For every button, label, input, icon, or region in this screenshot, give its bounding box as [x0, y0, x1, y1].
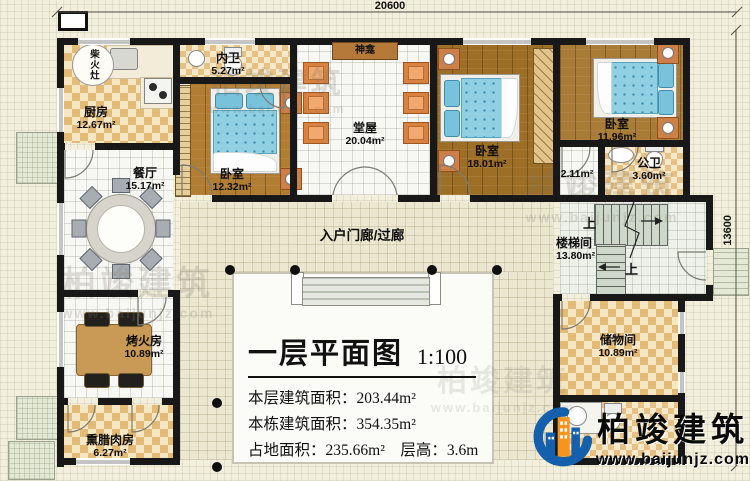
chimney [58, 11, 88, 31]
chair-icon [84, 373, 110, 388]
floor-plan: 柴火灶 神龛 [0, 0, 750, 481]
room-label-storage: 储物间10.89m² [578, 333, 658, 360]
wall [470, 195, 560, 202]
bed-icon [440, 74, 520, 142]
column [492, 265, 502, 275]
wall [173, 38, 180, 175]
pillow-icon [444, 80, 460, 107]
room-label-smoke-room: 熏腊肉房6.27m² [64, 433, 156, 460]
brand-logo-mark [532, 403, 592, 469]
window [463, 38, 531, 45]
wall [430, 38, 437, 202]
column [212, 462, 222, 472]
pillow-icon [444, 110, 460, 137]
armchair-icon [403, 92, 429, 114]
wall [57, 290, 138, 297]
wall [173, 290, 180, 465]
chair-icon [84, 312, 110, 327]
wall [95, 143, 173, 150]
wood-stove-icon: 柴火灶 [72, 44, 114, 86]
exterior-pad-left-top [16, 132, 59, 184]
area-row: 占地面积：235.66m² 层高：3.6m [248, 438, 476, 464]
pillow-icon [658, 63, 674, 88]
blanket-icon [461, 78, 503, 138]
wall [590, 294, 713, 301]
nightstand-icon [657, 117, 679, 139]
window [205, 38, 255, 45]
shrine-shelf: 神龛 [332, 42, 398, 60]
wall [98, 398, 132, 405]
room-label-porch: 入户门廊/过廊 [282, 228, 442, 244]
stove-label: 柴火灶 [86, 49, 100, 81]
area-row: 本层建筑面积：203.44m² [248, 386, 476, 412]
pillow-icon [246, 93, 274, 109]
burner-icon [149, 83, 157, 91]
pillow-icon [215, 93, 243, 109]
stairs-up-label: 上 [625, 259, 638, 278]
room-label-hall: 堂屋20.04m² [325, 121, 405, 148]
room-label-bedroom-mid: 卧室18.01m² [447, 144, 527, 171]
chair-icon [112, 264, 130, 279]
column [427, 265, 437, 275]
window [586, 38, 654, 45]
wall [57, 398, 68, 405]
wall [162, 398, 180, 405]
room-label-fire-room: 烤火房10.89m² [104, 334, 184, 361]
nightstand-icon [657, 42, 679, 64]
bed-icon [210, 88, 280, 174]
stair-run-down [596, 244, 626, 296]
wall [398, 195, 440, 202]
stairs-up-label: 上 [583, 213, 596, 232]
room-label-closet: 2.11m² [550, 168, 604, 181]
room-label-dining: 餐厅15.17m² [105, 166, 185, 193]
wardrobe-icon [533, 48, 554, 164]
armchair-icon [403, 62, 429, 84]
wall [553, 294, 562, 301]
room-label-kitchen: 厨房12.67m² [56, 105, 136, 132]
blanket-icon [213, 110, 277, 154]
stair-flight [594, 204, 668, 246]
table-top [97, 205, 145, 253]
room-label-public-bath: 公卫3.60m² [614, 156, 684, 183]
window [57, 203, 64, 255]
column [225, 265, 235, 275]
wall [180, 77, 290, 84]
blanket-fold [501, 78, 518, 138]
kitchen-sink-icon [110, 48, 138, 70]
chair-icon [156, 220, 171, 238]
bed-icon [593, 58, 677, 118]
brand-name: 柏竣建筑 [597, 403, 749, 451]
exterior-pad-right-entry [713, 248, 749, 296]
floor-walkway-left [180, 272, 232, 460]
wall [57, 143, 65, 150]
dimension-tick [731, 25, 741, 35]
wall [290, 38, 297, 202]
exterior-pad-left-bottom [16, 396, 59, 440]
window [57, 312, 64, 367]
dimension-top: 20600 [355, 0, 425, 12]
room-label-bedroom-right: 卧室11.96m² [577, 117, 657, 144]
room-label-inner-bath: 内卫5.27m² [193, 51, 263, 78]
column [212, 398, 222, 408]
title-block: 一层平面图 1:100 本层建筑面积：203.44m² 本栋建筑面积：354.3… [248, 330, 476, 464]
window [678, 312, 685, 334]
chair-icon [72, 220, 87, 238]
shrine-label: 神龛 [355, 45, 375, 56]
column [290, 265, 300, 275]
burner-icon [159, 91, 167, 99]
armchair-icon [303, 92, 329, 114]
dimension-tick [732, 7, 742, 17]
armchair-icon [303, 62, 329, 84]
plan-title: 一层平面图 [248, 330, 403, 372]
cooktop-icon [144, 78, 172, 104]
room-label-bedroom-left: 卧室12.32m² [192, 167, 272, 194]
wall [683, 38, 690, 202]
blanket-icon [610, 62, 658, 114]
wall [560, 195, 713, 202]
room-label-stair-hall: 楼梯间13.80m² [556, 236, 600, 263]
wall [212, 195, 332, 202]
brand-logo: 柏竣建筑 www.baijunjz.com [532, 398, 750, 474]
area-row: 本栋建筑面积：354.35m² [248, 412, 476, 438]
blanket-fold [597, 62, 612, 114]
window [78, 38, 130, 45]
pillow-icon [658, 90, 674, 115]
chair-icon [118, 373, 144, 388]
dimension-right: 13600 [722, 215, 734, 246]
exterior-pad-corner [8, 441, 55, 480]
nightstand-icon [438, 48, 460, 70]
armchair-icon [403, 122, 429, 144]
plan-scale: 1:100 [417, 344, 467, 372]
chair-icon [118, 312, 144, 327]
entry-steps [302, 277, 430, 306]
brand-website: www.baijunjz.com [596, 451, 750, 469]
wall [706, 202, 713, 250]
window [678, 372, 685, 393]
